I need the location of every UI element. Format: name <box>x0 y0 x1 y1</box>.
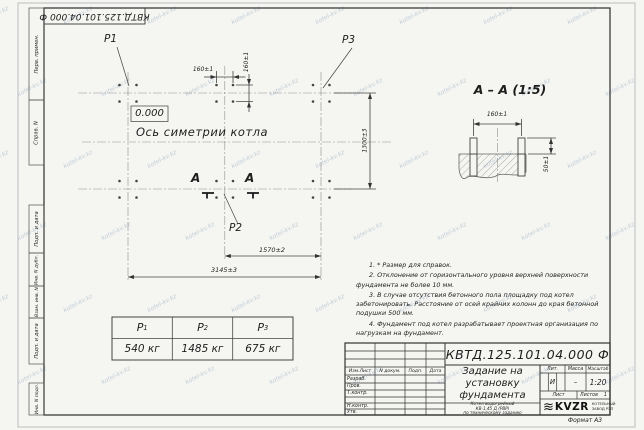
tb-row-nkontr: Н.контр. <box>347 404 368 409</box>
section-letter-right: А <box>245 171 254 185</box>
load-table-header-p2: P2 <box>172 317 232 339</box>
tb-scale-label: Масштаб <box>586 365 610 373</box>
tb-row-tkontr: Т.контр. <box>347 391 368 396</box>
tb-scale-value: 1:20 <box>586 373 610 391</box>
axis-label: Ось симетрии котла <box>136 125 268 139</box>
tb-doc-number: КВТД.125.101.04.000 Ф <box>445 343 610 365</box>
format-label: Формат А3 <box>560 416 610 424</box>
tb-subtitle: Котел водогрейный КВ-1,45 Д (РВР) по тех… <box>445 403 540 415</box>
dim-160-horizontal: 160±1 <box>183 65 223 73</box>
tb-col-doc: N докум. <box>375 367 405 375</box>
frame-label-podp-data-2: Подп. и дата <box>32 318 42 364</box>
section-dim-50: 50±1 <box>542 151 550 177</box>
load-label-p3: P3 <box>342 34 355 46</box>
drawing-sheet: kotel-kv.kzkotel-kv.kzkotel-kv.kzkotel-k… <box>0 0 644 430</box>
tb-sheets-cell: Листов 1 <box>577 391 610 399</box>
dim-3145: 3145±3 <box>200 266 248 274</box>
note-2: 2. Отклонение от горизонтального уровня … <box>356 271 608 290</box>
load-table-header-p3: P3 <box>233 317 293 339</box>
tb-col-izm: Изм.Лист <box>345 367 375 375</box>
note-3: 3. В случае отсутствия бетонного пола пл… <box>356 291 608 319</box>
tb-mass-label: Масса <box>565 365 586 373</box>
note-4: 4. Фундамент под котел разрабатывает про… <box>356 320 608 339</box>
tb-row-razrab: Разраб. <box>347 377 366 382</box>
frame-label-vzam-inv: Взам. инв. N <box>32 286 42 318</box>
dim-1300: 1300±3 <box>361 118 370 162</box>
frame-label-sprav-n: Справ. N <box>32 100 42 165</box>
frame-label-podp-data-1: Подп. и дата <box>32 205 42 253</box>
section-letter-left: А <box>191 171 200 185</box>
notes-block: 1. * Размер для справок. 2. Отклонение о… <box>356 261 608 339</box>
kvzr-waves-icon: ≋ <box>543 400 554 415</box>
load-label-p1: P1 <box>104 33 117 45</box>
section-dim-160: 160±1 <box>477 110 517 118</box>
tb-title: Задание на установку фундамента <box>445 365 540 403</box>
dim-160-vertical: 160±1 <box>242 47 250 77</box>
level-mark: 0.000 <box>131 106 168 122</box>
tb-row-utv: Утв. <box>347 410 357 415</box>
kvzr-logo-text: KVZR <box>555 401 589 413</box>
tb-sheet-label: Лист <box>540 391 577 399</box>
dim-1570: 1570±2 <box>248 246 296 254</box>
load-table-value-p1: 540 кг <box>112 339 172 361</box>
tb-logo-cell: ≋ KVZR КОТЕЛЬНЫЙ ЗАВОД РЭП <box>540 399 610 415</box>
frame-label-perv-primen: Перв. примен. <box>32 8 42 100</box>
tb-col-sign: Подп. <box>405 367 426 375</box>
kvzr-logo-subtext: КОТЕЛЬНЫЙ ЗАВОД РЭП <box>592 402 616 411</box>
load-table-header-p1: P1 <box>112 317 172 339</box>
tb-lit-label: Лит. <box>540 365 565 373</box>
note-1: 1. * Размер для справок. <box>356 261 608 270</box>
load-table-value-p3: 675 кг <box>233 339 293 361</box>
tb-col-date: Дата <box>426 367 445 375</box>
tb-lit-value: И <box>548 373 556 391</box>
section-title: А – А (1:5) <box>455 82 565 96</box>
frame-label-inv-podl: Инв. N подл. <box>32 383 42 415</box>
load-table-value-p2: 1485 кг <box>172 339 232 361</box>
tb-row-prov: Пров. <box>347 384 361 389</box>
top-doc-number: КВТД.125.101.04.000 Ф <box>44 8 145 24</box>
tb-mass-value: – <box>565 373 586 391</box>
load-label-p2: P2 <box>229 222 242 234</box>
tb-sheets-value: 1 <box>604 393 607 398</box>
frame-label-inv-dubl: Инв. N дубл. <box>32 253 42 286</box>
plan-linework <box>78 47 392 281</box>
